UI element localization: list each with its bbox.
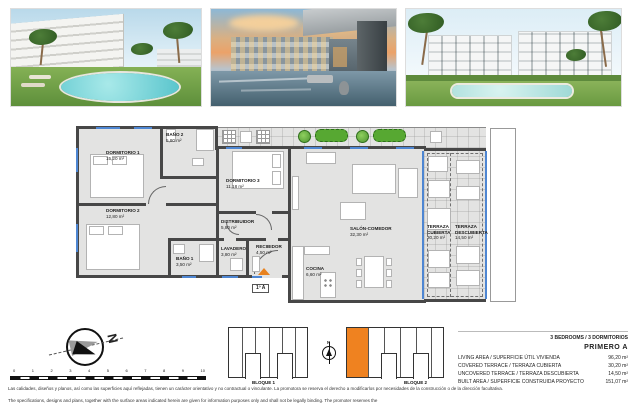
bloque-1-footprint xyxy=(228,327,308,378)
kitchen-counter xyxy=(304,246,330,255)
sun-lounger xyxy=(456,186,480,200)
bloque-1-label: BLOQUE 1 xyxy=(252,380,275,385)
room-label-dormitorio-3: DORMITORIO 311,18 m² xyxy=(226,178,260,189)
unit-entry-label: 1º A xyxy=(252,284,269,293)
unit-divider xyxy=(431,328,432,377)
pillow xyxy=(108,226,123,235)
compass-north-label: N xyxy=(104,332,121,345)
window xyxy=(350,147,368,149)
window xyxy=(252,276,262,278)
sofa xyxy=(352,164,396,194)
washer-icon xyxy=(230,258,243,271)
room-label-cocina: COCINA6,60 m² xyxy=(306,266,324,277)
hedge-icon xyxy=(315,129,348,142)
bush-icon xyxy=(356,130,369,143)
key-plan-compass-axis xyxy=(329,342,330,364)
pillow xyxy=(89,226,104,235)
grate-icon xyxy=(222,130,236,144)
room-label-salon-comedor: SALÓN-COMEDOR32,30 m² xyxy=(350,226,392,237)
room-label-bano-1: BAÑO 13,50 m² xyxy=(176,256,193,267)
shower xyxy=(199,244,214,262)
sink xyxy=(173,244,185,254)
window xyxy=(182,276,196,278)
highlighted-unit xyxy=(347,328,368,377)
unit-divider xyxy=(295,328,296,377)
grate-icon xyxy=(256,130,270,144)
room-label-dormitorio-2: DORMITORIO 212,80 m² xyxy=(106,208,140,219)
chair xyxy=(356,258,362,266)
dining-table xyxy=(364,256,384,288)
sun-lounger xyxy=(456,160,480,174)
sideboard xyxy=(306,152,336,164)
unit-title: PRIMERO A xyxy=(458,344,628,351)
sun-lounger xyxy=(456,246,480,264)
wall xyxy=(216,211,290,214)
sun-lounger xyxy=(456,270,480,286)
photo-pool-garden xyxy=(10,8,202,107)
stove-icon xyxy=(323,278,333,288)
wall xyxy=(168,238,171,278)
wall xyxy=(168,238,218,241)
tv-bench xyxy=(292,176,299,210)
unit-divider xyxy=(269,328,270,377)
vase xyxy=(339,81,349,95)
room-label-terraza-descubierta: TERRAZA DESCUBIERTA14,50 m² xyxy=(455,224,483,241)
patio-notch xyxy=(245,353,261,379)
patio-notch xyxy=(413,353,429,379)
terrace-chair xyxy=(428,156,448,172)
brochure-page: 1º A DORMITORIO 115,20 m² BAÑO 25,80 m² … xyxy=(0,0,631,404)
chair xyxy=(386,258,392,266)
armchair xyxy=(398,168,418,198)
unit-divider xyxy=(368,328,369,377)
sun-lounger xyxy=(21,83,45,87)
pillow xyxy=(272,171,281,185)
bush-icon xyxy=(298,130,311,143)
summary-divider xyxy=(458,331,628,332)
unit-divider xyxy=(400,328,401,377)
chair xyxy=(356,269,362,277)
wall xyxy=(288,148,291,278)
swimming-pool xyxy=(61,73,179,101)
cloud xyxy=(229,15,299,31)
window xyxy=(396,147,414,149)
bedrooms-line: 3 BEDROOMS / 3 DORMITORIOS xyxy=(458,335,628,341)
sink xyxy=(192,158,204,166)
wall xyxy=(160,176,218,179)
terrace-chair xyxy=(428,250,450,268)
room-label-dormitorio-1: DORMITORIO 115,20 m² xyxy=(106,150,140,161)
bloque-2-label: BLOQUE 2 xyxy=(404,380,427,385)
planter-top-line xyxy=(216,127,486,128)
bloque-2-footprint xyxy=(346,327,444,378)
summary-row: COVERED TERRACE / TERRAZA CUBIERTA30,20 … xyxy=(458,364,628,369)
disclaimer-es: Las calidades, diseños y planos, así com… xyxy=(8,386,624,392)
window xyxy=(76,224,78,252)
glazed-door-wall xyxy=(422,151,424,299)
scale-numbers: 012345678910 xyxy=(13,368,205,374)
patio-notch xyxy=(381,353,397,379)
coffee-table xyxy=(340,202,366,220)
warm-window xyxy=(333,47,347,67)
chair xyxy=(386,269,392,277)
terrace-wall xyxy=(424,148,486,151)
window xyxy=(226,147,242,149)
terrace-wall xyxy=(424,299,486,302)
summary-row: LIVING AREA / SUPERFICIE ÚTIL VIVIENDA96… xyxy=(458,356,628,361)
entry-arrow-icon xyxy=(258,268,270,275)
window xyxy=(76,148,78,172)
summary-row: UNCOVERED TERRACE / TERRAZA DESCUBIERTA1… xyxy=(458,372,628,377)
wall xyxy=(160,126,163,178)
hedge-icon xyxy=(373,129,406,142)
pillow xyxy=(272,154,281,168)
kitchen-counter xyxy=(292,246,304,300)
unit-divider xyxy=(242,328,243,377)
lounge-chair xyxy=(307,75,333,83)
patio-notch xyxy=(277,353,293,379)
room-label-lavadero: LAVADERO3,80 m² xyxy=(221,246,246,257)
summary-row: BUILT AREA / SUPERFICIE CONSTRUIDA PROYE… xyxy=(458,380,628,385)
room-label-bano-2: BAÑO 25,80 m² xyxy=(166,132,183,143)
swimming-pool xyxy=(452,85,572,97)
window xyxy=(304,147,322,149)
window xyxy=(96,127,120,129)
chair xyxy=(356,280,362,288)
wall xyxy=(246,238,249,278)
window xyxy=(134,127,152,129)
lit-windows xyxy=(231,37,333,75)
sun-lounger xyxy=(29,75,51,79)
window xyxy=(222,276,238,278)
door-opening xyxy=(224,238,236,241)
skylight xyxy=(430,131,442,143)
terrace-chair xyxy=(428,180,450,198)
glass-balustrade xyxy=(485,151,487,299)
terrace-chair xyxy=(428,272,450,288)
chair xyxy=(386,280,392,288)
door-opening xyxy=(266,238,278,241)
room-label-distribuidor: DISTRIBUIDOR5,80 m² xyxy=(221,219,254,230)
disclaimer-en: The specifications, designs and plans, t… xyxy=(8,398,624,404)
apartment-block-right xyxy=(518,31,612,79)
adjacent-strip xyxy=(490,128,516,302)
photo-sunset-terrace xyxy=(210,8,397,107)
wall xyxy=(288,275,291,303)
scale-bar xyxy=(10,376,206,380)
wall xyxy=(288,300,426,303)
room-label-recibidor: RECIBIDOR4,50 m² xyxy=(256,244,282,255)
room-label-terraza-cubierta: TERRAZA CUBIERTA30,20 m² xyxy=(427,224,451,241)
skylight xyxy=(240,131,252,143)
apartment-block-left xyxy=(428,35,512,79)
shower xyxy=(196,129,214,151)
photo-facade-pool xyxy=(405,8,622,107)
